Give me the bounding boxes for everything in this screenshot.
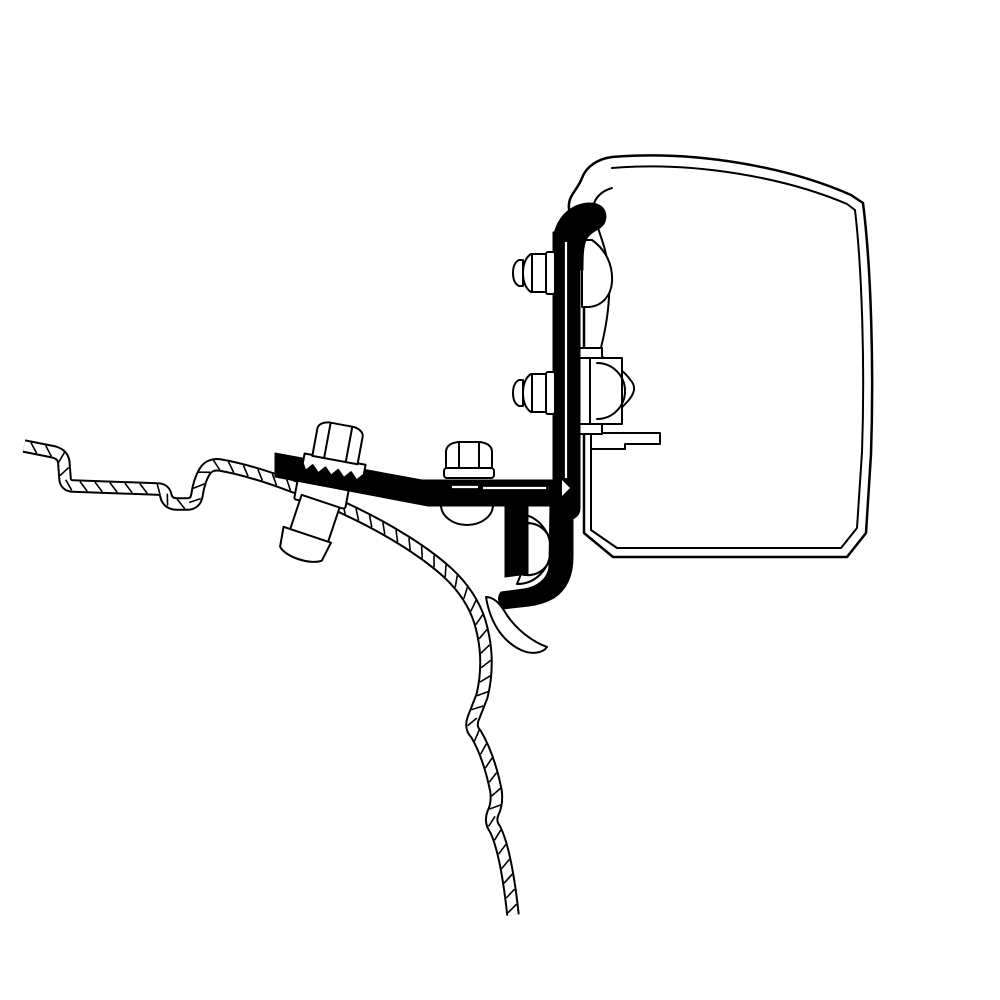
cap-nut-upper-washer [546,252,555,294]
clamp-bolt-group [444,442,494,478]
diagram-canvas [0,0,1000,1000]
clamp-bolt-washer [444,468,494,478]
roof-hatch-tick [409,538,410,550]
fasteners [302,252,555,481]
channel-nut [579,348,625,434]
cassette-outer-contour [569,155,872,557]
cap-nut-lower [513,372,555,414]
cap-nut-upper [513,252,555,294]
cap-nut-upper-body [523,254,546,292]
roof-hatch-tick [445,565,446,577]
clamp-bolt-spacer-arc [441,505,493,525]
awning-cassette-profile [569,155,872,557]
spacer-sleeve-group [274,477,349,569]
roof-bolt-hex-head [312,421,364,465]
awning-adapter-diagram [0,0,1000,1000]
cap-nut-lower-dome [513,380,523,406]
roof-panel-core [24,446,513,915]
roof-hatch-tick [422,546,423,558]
roof-panel-outline [24,446,513,915]
cap-nut-lower-washer [546,372,555,414]
cap-nut-lower-body [523,374,546,412]
channel-nut-body [579,358,622,424]
clamp-bolt-hex-head [446,442,492,468]
j-hook-strip-a [505,505,528,577]
cap-nut-upper-dome [513,260,523,286]
